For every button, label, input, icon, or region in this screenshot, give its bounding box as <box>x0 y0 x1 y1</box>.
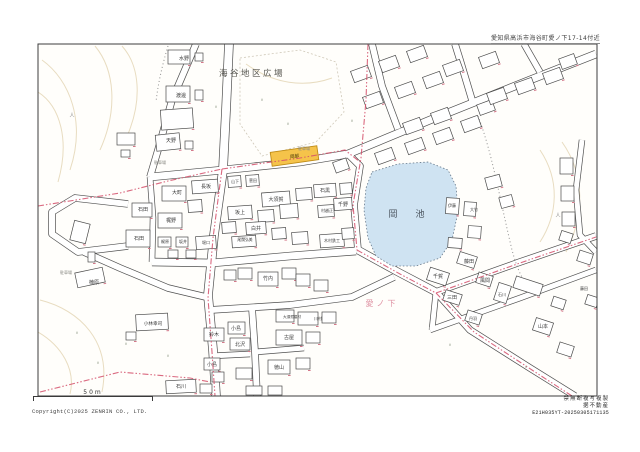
map-label: 長坂 <box>201 183 211 190</box>
map-label: 駐車場 <box>298 145 310 151</box>
map-label: 伊藤 <box>448 202 456 208</box>
scale-label: 50m <box>33 389 153 396</box>
map-label: 小島 <box>231 325 241 332</box>
map-label: 小島 <box>207 361 217 368</box>
map-label: 藤田 <box>580 285 588 291</box>
map-label: 尾関弘美 <box>237 237 252 242</box>
map-label: 堀口 <box>202 239 210 245</box>
map-label: 大須賀建材 <box>283 314 301 319</box>
map-layers: 岡部∨∨∨∨∨∨∨∨∨∨人人海谷地区広場岡池愛ノ下水野渡邊天野駐車場駐車場駐車場… <box>38 44 599 397</box>
map-label: 水野 <box>179 55 189 62</box>
map-label: 千賀 <box>433 273 443 280</box>
svg-text:人: 人 <box>69 113 74 119</box>
scale-line <box>33 396 153 401</box>
map-label: 池 <box>415 208 424 220</box>
map-label: 渡邊 <box>176 92 186 99</box>
map-label: 石川 <box>176 384 186 390</box>
map-label: 石田 <box>138 207 148 213</box>
map-label: 藤田 <box>464 258 474 265</box>
svg-text:∨: ∨ <box>525 364 528 369</box>
map-label: 坂井 <box>179 238 187 244</box>
map-label: 岡 <box>388 209 397 220</box>
map-label: 石川 <box>498 292 506 297</box>
print-notices: 禁無断複写複製 据不動産 E21H035YT-20250305171135 <box>532 396 609 417</box>
svg-text:∨: ∨ <box>261 97 264 102</box>
map-label: 川村 <box>314 315 322 321</box>
map-label: 白井 <box>251 225 261 232</box>
map-label: 菅田 <box>249 177 257 183</box>
map-label: 駐車場 <box>154 159 166 165</box>
map-label: 石田 <box>134 236 144 242</box>
map-label: 大須賀 <box>268 196 283 203</box>
map-label: 千野 <box>338 201 348 208</box>
map-label: 楠原 <box>89 279 99 286</box>
map-label: 鈴木 <box>209 331 219 338</box>
map-label: 天野 <box>166 137 176 144</box>
map-label: 駐車場 <box>60 269 72 275</box>
map-label: 坂上 <box>235 209 245 216</box>
svg-text:∨: ∨ <box>449 342 452 347</box>
svg-text:∨: ∨ <box>215 104 218 109</box>
svg-text:人: 人 <box>555 213 560 219</box>
notice-line-2: 据不動産 <box>532 403 609 410</box>
svg-text:∨: ∨ <box>287 121 290 126</box>
map-label: 愛ノ下 <box>366 298 399 308</box>
map-label: 大町 <box>172 189 182 196</box>
map-label: 海谷地区広場 <box>219 68 285 79</box>
map-label: 村越正 <box>321 207 333 213</box>
print-code: E21H035YT-20250305171135 <box>532 410 609 417</box>
map-label: 梶野 <box>166 217 176 224</box>
map-label: 石黒 <box>320 188 330 194</box>
copyright-text: Copyright(C)2025 ZENRIN CO., LTD. <box>32 408 148 415</box>
header-address: 愛知県高浜市海谷町愛ノ下17-14付近 <box>491 33 600 44</box>
map-label: 山下 <box>231 178 239 184</box>
map-label: 梶原 <box>161 238 169 244</box>
map-label: 木村鉄工 <box>324 237 340 243</box>
map-label: 大竹 <box>470 206 478 212</box>
svg-text:∨: ∨ <box>125 341 128 346</box>
map-label: 山本 <box>538 323 548 330</box>
svg-text:∨: ∨ <box>76 330 79 335</box>
map-print-page: 愛知県高浜市海谷町愛ノ下17-14付近 岡部∨∨∨∨∨∨∨∨∨∨人人海谷地区広場… <box>0 0 640 452</box>
map-label: 徳山 <box>274 364 284 371</box>
svg-text:∨: ∨ <box>97 360 100 365</box>
map-label: 小林幸司 <box>144 320 163 327</box>
map-canvas: 岡部∨∨∨∨∨∨∨∨∨∨人人海谷地区広場岡池愛ノ下水野渡邊天野駐車場駐車場駐車場… <box>0 0 640 452</box>
svg-text:∨: ∨ <box>167 353 170 358</box>
svg-text:∨: ∨ <box>351 118 354 123</box>
map-label: 丹羽 <box>469 316 477 321</box>
map-label: 風間 <box>480 278 490 284</box>
map-label: 古屋 <box>284 334 294 341</box>
map-label: 三田 <box>447 295 457 301</box>
scale-bar: 50m <box>33 389 153 401</box>
pond-shape <box>364 162 458 266</box>
map-label: 竹内 <box>263 275 273 282</box>
map-label: 北沢 <box>235 341 245 348</box>
